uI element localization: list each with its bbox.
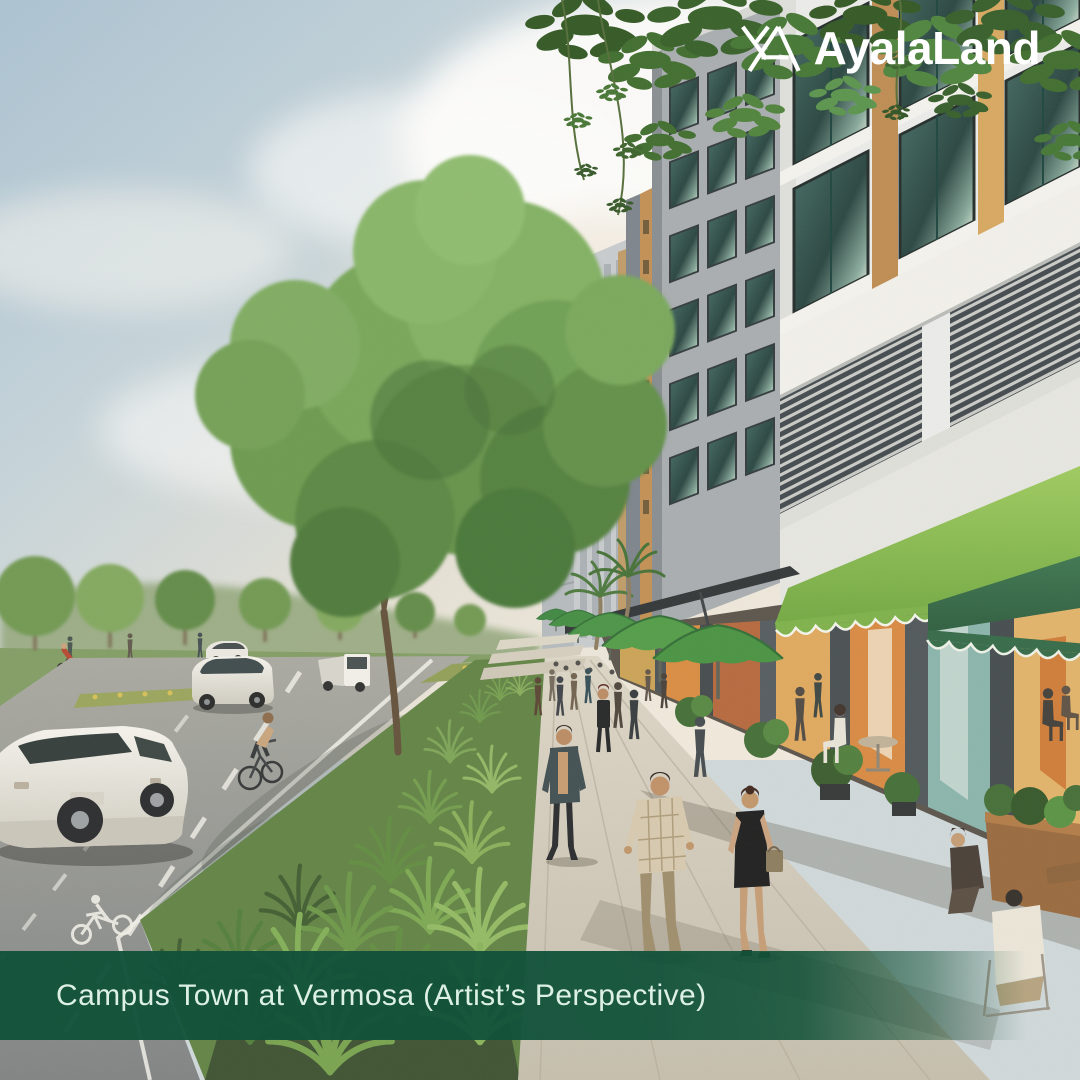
- caption-text: Campus Town at Vermosa (Artist’s Perspec…: [56, 979, 706, 1013]
- brand-logo: AyalaLand: [736, 20, 1040, 76]
- scene-rendering: [0, 0, 1080, 1080]
- poster: AyalaLand Campus Town at Vermosa (Artist…: [0, 0, 1080, 1080]
- ayalaland-monogram-icon: [736, 20, 802, 76]
- brand-logo-text: AyalaLand: [814, 25, 1040, 71]
- caption-bar: Campus Town at Vermosa (Artist’s Perspec…: [0, 951, 1080, 1040]
